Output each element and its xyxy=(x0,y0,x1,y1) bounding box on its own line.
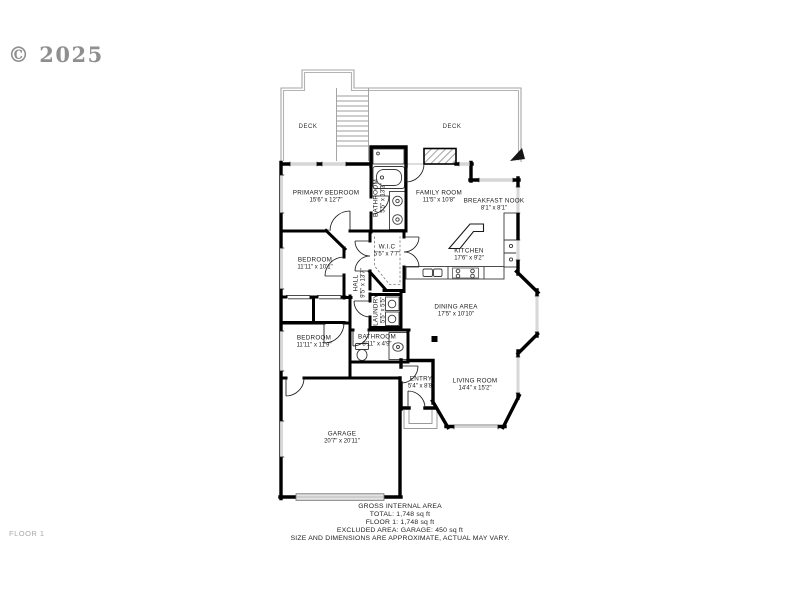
room-name: BATHROOM xyxy=(372,179,379,217)
room-name: BATHROOM xyxy=(358,333,396,340)
porch-steps xyxy=(404,410,437,429)
room-dims: 17'5" x 10'10" xyxy=(434,311,477,317)
room-name: KITCHEN xyxy=(454,247,484,254)
room-label-deck-left: DECK xyxy=(299,124,318,130)
kitchen-island-icon xyxy=(449,224,484,249)
room-name: DINING AREA xyxy=(434,303,477,310)
corner-mark xyxy=(510,148,525,161)
room-dims: 11'11" x 10'1" xyxy=(297,264,332,270)
room-label-family-room: FAMILY ROOM 11'5" x 10'8" xyxy=(416,189,462,203)
room-name: DECK xyxy=(299,124,318,130)
shower-icon xyxy=(373,149,404,164)
gross-internal-area-title: GROSS INTERNAL AREA xyxy=(0,503,800,511)
room-label-bedroom-3: BEDROOM 11'11" x 11'9" xyxy=(297,334,332,348)
garage-door xyxy=(296,494,384,501)
room-dims: 9'5" x 13'7" xyxy=(360,268,366,298)
total-area: TOTAL: 1,748 sq ft xyxy=(0,511,800,519)
room-label-laundry: LAUNDRY 5'5" x 5'5" xyxy=(372,294,386,326)
room-name: BEDROOM xyxy=(297,256,332,263)
room-dims: 8'1" x 8'1" xyxy=(464,205,525,211)
room-dims: 5'4" x 8'8" xyxy=(408,383,434,389)
room-label-entry: ENTRY 5'4" x 8'8" xyxy=(408,375,434,389)
room-label-breakfast-nook: BREAKFAST NOOK 8'1" x 8'1" xyxy=(464,197,525,211)
room-label-hall: HALL 9'5" x 13'7" xyxy=(352,268,366,298)
room-dims: 11'11" x 11'9" xyxy=(297,342,332,348)
room-name: PRIMARY BEDROOM xyxy=(293,189,360,196)
room-label-garage: GARAGE 20'7" x 20'11" xyxy=(324,430,360,444)
floor-plan-page: © 2025 xyxy=(0,0,800,600)
floor1-area: FLOOR 1: 1,748 sq ft xyxy=(0,519,800,527)
room-dims: 5'5" x 13'3" xyxy=(380,179,386,217)
room-name: BREAKFAST NOOK xyxy=(464,197,525,204)
room-dims: 17'6" x 9'2" xyxy=(454,255,484,261)
room-name: FAMILY ROOM xyxy=(416,189,462,196)
stairs-icon xyxy=(337,88,369,161)
room-dims: 8'11" x 4'9" xyxy=(358,341,396,347)
room-dims: 11'5" x 10'8" xyxy=(416,197,462,203)
room-dims: 5'5" x 7'7" xyxy=(374,251,400,257)
washer-dryer-icon xyxy=(386,297,400,326)
room-label-primary-bedroom: PRIMARY BEDROOM 15'6" x 12'7" xyxy=(293,189,360,203)
room-label-bedroom-2: BEDROOM 11'11" x 10'1" xyxy=(297,256,332,270)
room-name: HALL xyxy=(352,268,359,298)
double-vanity-icon xyxy=(390,192,407,230)
room-label-primary-bathroom: BATHROOM 5'5" x 13'3" xyxy=(372,179,386,217)
room-dims: 20'7" x 20'11" xyxy=(324,438,360,444)
excluded-area: EXCLUDED AREA: GARAGE: 450 sq ft xyxy=(0,527,800,535)
support-post xyxy=(432,336,438,342)
room-dims: 5'5" x 5'5" xyxy=(380,294,386,326)
room-label-dining-area: DINING AREA 17'5" x 10'10" xyxy=(434,303,477,317)
area-summary: GROSS INTERNAL AREA TOTAL: 1,748 sq ft F… xyxy=(0,503,800,543)
room-name: W.I.C xyxy=(374,243,400,250)
room-name: BEDROOM xyxy=(297,334,332,341)
fireplace-icon xyxy=(424,149,456,165)
room-name: LAUNDRY xyxy=(372,294,379,326)
room-label-kitchen: KITCHEN 17'6" x 9'2" xyxy=(454,247,484,261)
disclaimer: SIZE AND DIMENSIONS ARE APPROXIMATE, ACT… xyxy=(0,535,800,543)
room-label-walk-in-closet: W.I.C 5'5" x 7'7" xyxy=(374,243,400,257)
room-name: LIVING ROOM xyxy=(453,377,498,384)
room-name: GARAGE xyxy=(324,430,360,437)
room-name: ENTRY xyxy=(408,375,434,382)
room-dims: 15'6" x 12'7" xyxy=(293,197,360,203)
room-dims: 14'4" x 15'2" xyxy=(453,385,498,391)
room-label-bathroom-2: BATHROOM 8'11" x 4'9" xyxy=(358,333,396,347)
room-label-deck-right: DECK xyxy=(443,124,462,130)
room-name: DECK xyxy=(443,124,462,130)
room-label-living-room: LIVING ROOM 14'4" x 15'2" xyxy=(453,377,498,391)
